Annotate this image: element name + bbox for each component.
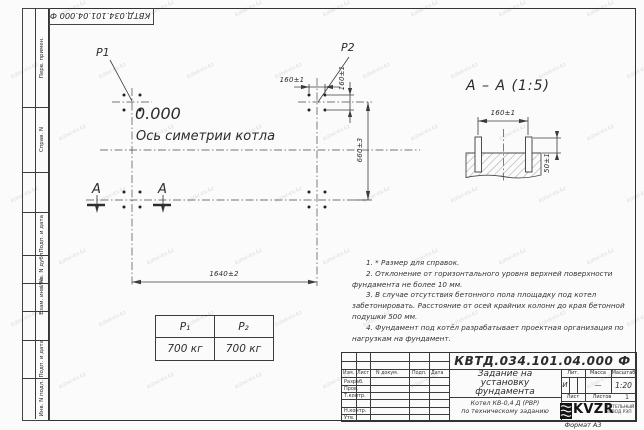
dim-section-bolt-protrusion: 50±1 bbox=[543, 143, 553, 183]
load-table-value-p2: 700 кг bbox=[214, 337, 273, 360]
section-mark-letter-left: А bbox=[92, 182, 101, 197]
tb-row-utv: Утв. bbox=[344, 415, 355, 421]
tb-product-name: Котел КВ-0,4 Д (РВР) по техническому зад… bbox=[449, 400, 561, 415]
tb-scale-label: Масштаб bbox=[611, 369, 636, 377]
tb-mass-label: Масса bbox=[585, 369, 611, 377]
tb-col-podp: Подп. bbox=[412, 371, 427, 376]
tb-lit-value: И bbox=[561, 377, 569, 393]
technical-notes: 1. * Размер для справок. 2. Отклонение о… bbox=[352, 258, 640, 344]
tb-line bbox=[342, 414, 449, 415]
tb-line bbox=[342, 399, 449, 400]
tb-col-ndokum: N докум. bbox=[376, 371, 398, 376]
tb-title-line3: фундамента bbox=[449, 388, 561, 397]
tb-lit-label: Лит. bbox=[561, 369, 585, 377]
tb-row-tkontr: Т.контр. bbox=[344, 393, 366, 399]
dim-row-spacing-660: 660±3 bbox=[356, 130, 366, 170]
note-3: 3. В случае отсутствия бетонного пола пл… bbox=[352, 290, 640, 322]
drawing-sheet: kotel-kv.kzkotel-kv.kzkotel-kv.kzkotel-k… bbox=[0, 0, 644, 430]
load-point-p1-label: P1 bbox=[96, 46, 110, 59]
section-title: А – А (1:5) bbox=[466, 78, 550, 94]
tb-sheets-label: Листов bbox=[587, 393, 617, 401]
tb-row-nkontr: Н.контр. bbox=[344, 408, 366, 414]
dim-column-spacing-1640: 1640±2 bbox=[204, 270, 244, 278]
tb-line bbox=[429, 353, 430, 421]
note-4: 4. Фундамент под котёл разрабатывает про… bbox=[352, 323, 640, 345]
kvzr-logo-icon bbox=[560, 403, 572, 419]
dim-bolt-spacing-vertical: 160±1 bbox=[338, 58, 348, 98]
tb-row-prov: Пров. bbox=[344, 386, 359, 392]
tb-product-line2: по техническому заданию bbox=[449, 408, 561, 416]
tb-brand-sub2: ЗАВОД РЭП bbox=[606, 410, 634, 415]
tb-line bbox=[370, 353, 371, 421]
tb-col-izm: Изм. bbox=[343, 371, 354, 376]
tb-drawing-title: Задание на установку фундамента bbox=[449, 370, 561, 397]
title-block: Изм. Лист N докум. Подп. Дата Разраб. Пр… bbox=[341, 352, 637, 422]
note-1: 1. * Размер для справок. bbox=[352, 258, 640, 269]
tb-line bbox=[409, 353, 410, 421]
tb-scale-value: 1:20 bbox=[611, 377, 636, 393]
load-table: P₁ P₂ 700 кг 700 кг bbox=[155, 315, 274, 361]
dim-section-bolt-spacing: 160±1 bbox=[483, 109, 523, 117]
tb-sheets-value: 1 bbox=[620, 393, 634, 401]
note-2: 2. Отклонение от горизонтального уровня … bbox=[352, 269, 640, 291]
load-table-header-p2: P₂ bbox=[214, 316, 273, 337]
dim-bolt-spacing-horizontal: 160±1 bbox=[278, 76, 306, 84]
level-mark: 0.000 bbox=[135, 104, 181, 123]
tb-sheet-label: Лист bbox=[561, 393, 585, 401]
tb-line bbox=[569, 377, 570, 393]
tb-line bbox=[342, 361, 449, 362]
boiler-symmetry-axis-label: Ось симетрии котла bbox=[136, 129, 275, 144]
section-mark-letter-right: А bbox=[158, 182, 167, 197]
load-table-value-p1: 700 кг bbox=[156, 337, 214, 360]
tb-row-razrab: Разраб. bbox=[344, 379, 364, 385]
tb-mass-value: — bbox=[585, 377, 611, 393]
format-label: Формат А3 bbox=[553, 420, 613, 429]
load-point-p2-label: P2 bbox=[341, 41, 355, 54]
tb-col-data: Дата bbox=[431, 371, 443, 376]
tb-line bbox=[577, 377, 578, 393]
load-table-header-p1: P₁ bbox=[156, 316, 214, 337]
tb-col-list: Лист bbox=[357, 371, 369, 376]
tb-product-line1: Котел КВ-0,4 Д (РВР) bbox=[449, 400, 561, 408]
tb-line bbox=[449, 397, 561, 398]
tb-doc-number: КВТД.034.101.04.000 Ф bbox=[449, 353, 636, 369]
tb-brand-subtitle: КОТЕЛЬНЫЙ ЗАВОД РЭП bbox=[606, 405, 634, 415]
